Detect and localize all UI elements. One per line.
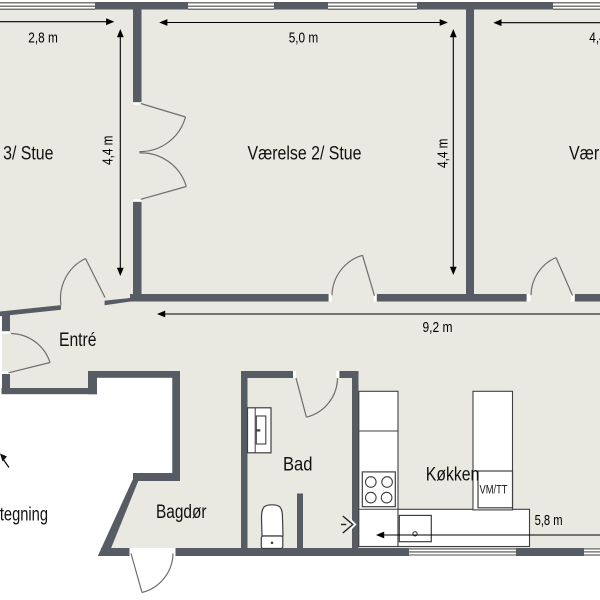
svg-text:VM/TT: VM/TT: [480, 485, 508, 497]
svg-text:9,2 m: 9,2 m: [423, 319, 453, 336]
svg-text:Værelse 3/ Stue: Værelse 3/ Stue: [0, 144, 54, 165]
svg-text:Entré: Entré: [59, 330, 97, 351]
svg-text:2,8 m: 2,8 m: [28, 30, 58, 47]
svg-text:Bad: Bad: [283, 455, 313, 476]
svg-text:5,8 m: 5,8 m: [535, 512, 563, 529]
svg-text:Plantegning: Plantegning: [0, 505, 48, 526]
svg-text:4,4 m: 4,4 m: [435, 139, 452, 169]
svg-text:Bagdør: Bagdør: [156, 502, 207, 523]
svg-text:5,0 m: 5,0 m: [289, 30, 319, 47]
svg-text:Værelse 1: Værelse 1: [569, 144, 600, 165]
svg-text:Køkken: Køkken: [426, 465, 480, 486]
svg-text:4,4 m: 4,4 m: [589, 30, 600, 47]
svg-text:Værelse 2/ Stue: Værelse 2/ Stue: [248, 144, 362, 165]
svg-text:4,4 m: 4,4 m: [100, 136, 117, 166]
